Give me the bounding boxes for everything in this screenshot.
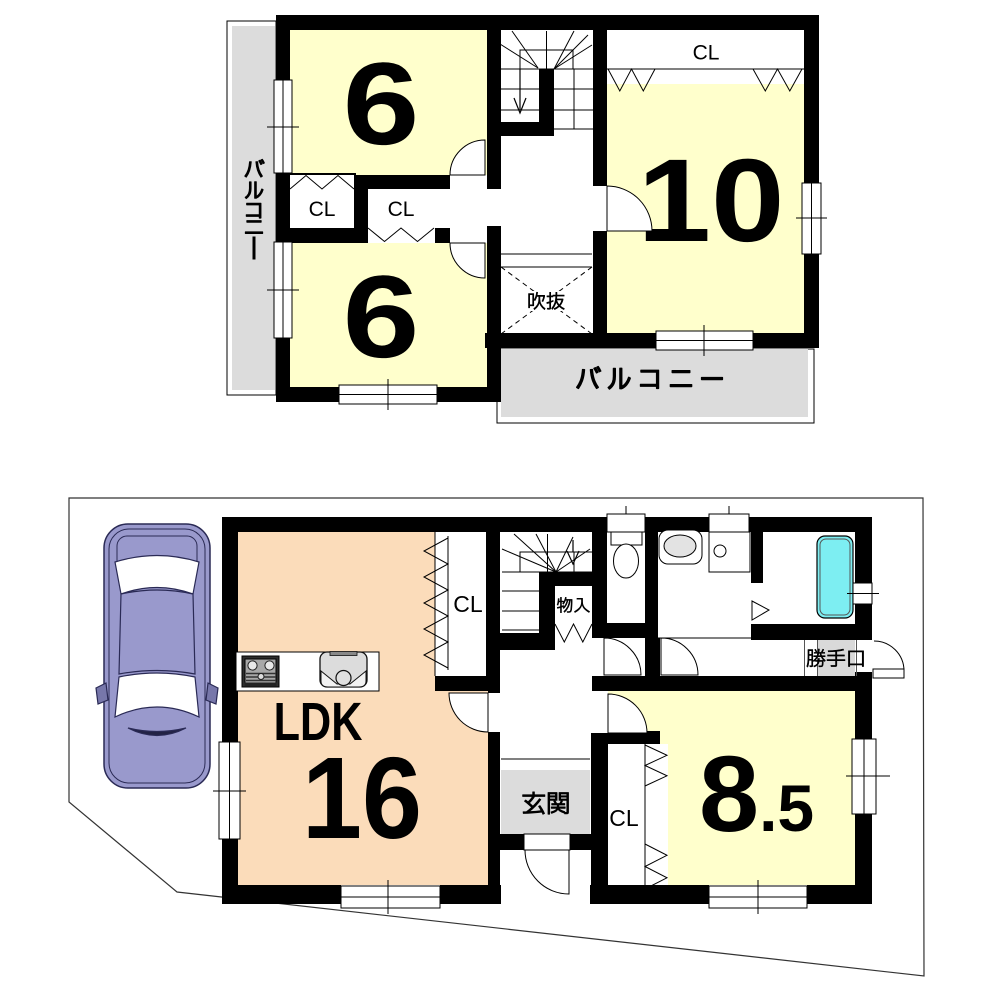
svg-text:16: 16 [302,733,422,862]
svg-text:CL: CL [453,591,483,617]
svg-text:CL: CL [388,198,415,221]
svg-text:6: 6 [343,252,420,383]
svg-text:CL: CL [609,805,639,831]
svg-text:6: 6 [343,39,420,170]
svg-text:10: 10 [638,135,785,267]
svg-text:CL: CL [693,42,720,65]
svg-text:CL: CL [309,198,336,221]
